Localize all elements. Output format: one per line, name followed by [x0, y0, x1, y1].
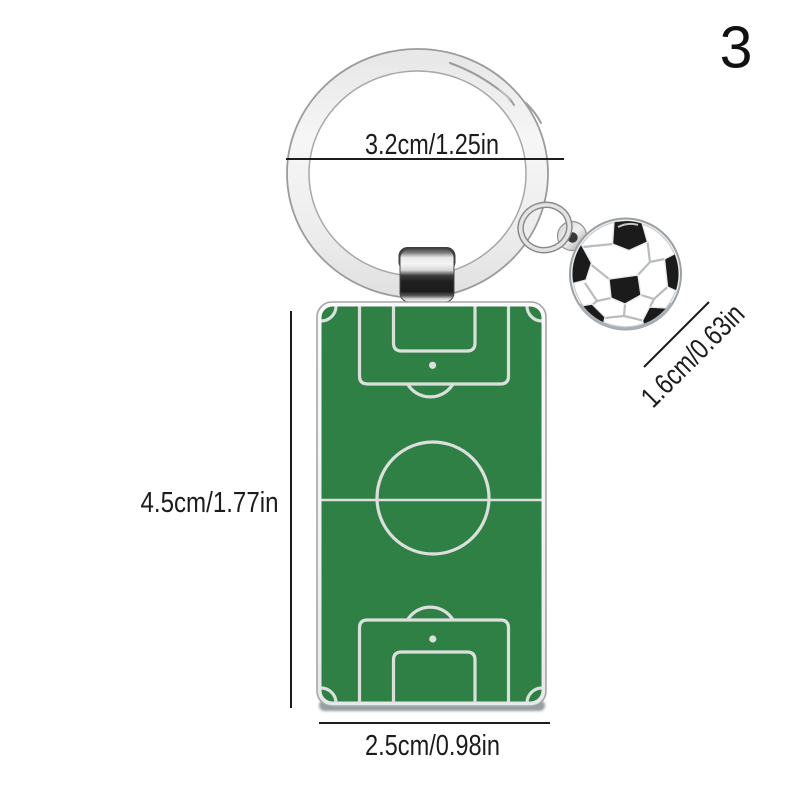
svg-text:2.5cm/0.98in: 2.5cm/0.98in: [365, 730, 500, 762]
svg-text:4.5cm/1.77in: 4.5cm/1.77in: [141, 487, 279, 519]
svg-text:3: 3: [720, 15, 753, 81]
svg-text:3.2cm/1.25in: 3.2cm/1.25in: [365, 129, 499, 161]
